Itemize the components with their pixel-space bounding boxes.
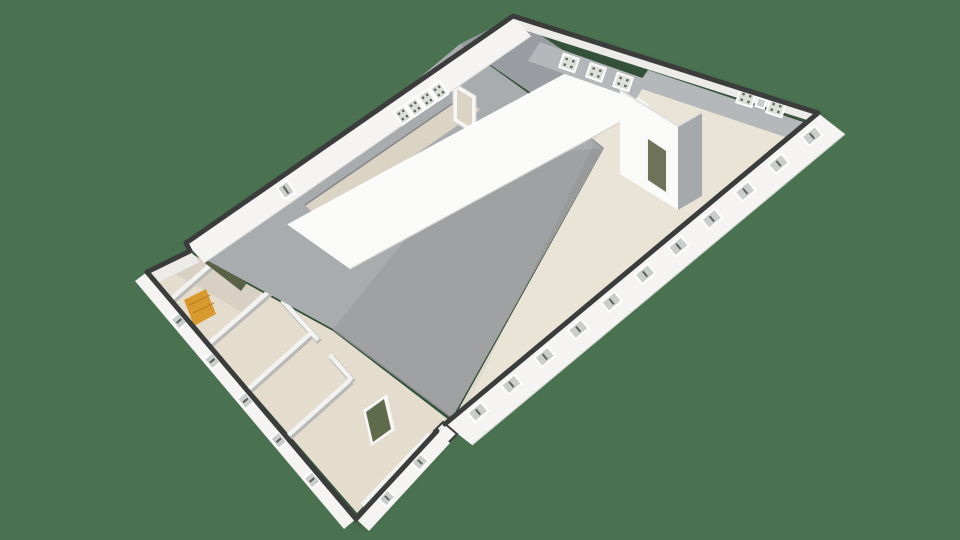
- floorplan-canvas[interactable]: [0, 0, 960, 540]
- floorplan-stage: [0, 0, 960, 540]
